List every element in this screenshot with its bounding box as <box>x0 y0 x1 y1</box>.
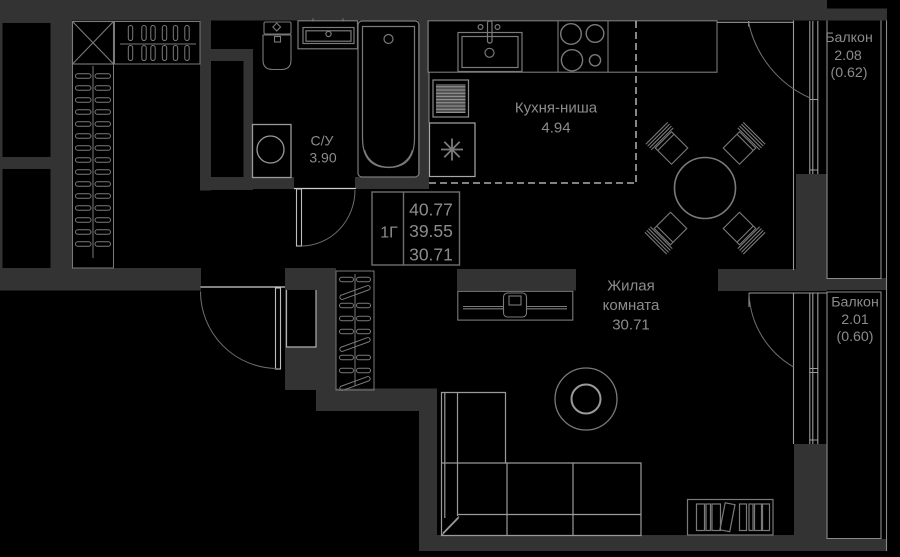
svg-text:30.71: 30.71 <box>409 245 453 265</box>
svg-text:3.90: 3.90 <box>309 150 336 166</box>
svg-text:С/У: С/У <box>311 133 334 149</box>
svg-text:(0.60): (0.60) <box>836 329 873 345</box>
svg-text:Балкон: Балкон <box>831 295 879 311</box>
svg-text:40.77: 40.77 <box>409 200 453 220</box>
svg-text:2.08: 2.08 <box>834 48 862 64</box>
svg-text:39.55: 39.55 <box>409 221 453 241</box>
svg-text:комната: комната <box>603 297 660 314</box>
svg-text:(0.62): (0.62) <box>830 65 867 81</box>
svg-text:2.01: 2.01 <box>841 312 869 328</box>
svg-text:Жилая: Жилая <box>607 278 654 295</box>
svg-text:1Г: 1Г <box>380 225 398 242</box>
svg-text:Кухня-ниша: Кухня-ниша <box>515 100 598 117</box>
svg-text:30.71: 30.71 <box>612 317 650 334</box>
svg-text:Балкон: Балкон <box>825 30 873 46</box>
svg-text:4.94: 4.94 <box>541 120 570 137</box>
